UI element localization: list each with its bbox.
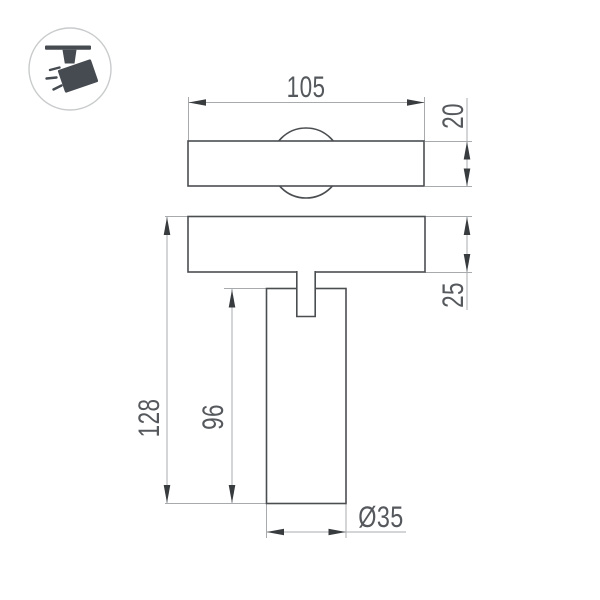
front-view-stem-fill (297, 271, 315, 317)
arrow-25-down (464, 254, 471, 272)
arrow-d35-right (329, 529, 347, 536)
arrow-25-up (464, 217, 471, 235)
dim-label-128: 128 (132, 399, 166, 438)
arrow-d35-left (267, 529, 285, 536)
drawing-sheet: 105 20 25 128 96 Ø35 (0, 0, 600, 600)
arrow-105-right (407, 99, 425, 106)
dim-label-20: 20 (436, 103, 470, 129)
track-spotlight-icon (29, 28, 111, 110)
technical-drawing: 105 20 25 128 96 Ø35 (0, 0, 600, 600)
dim-label-96: 96 (196, 404, 230, 430)
dim-label-d35: Ø35 (358, 500, 403, 533)
icon-ray-2 (47, 78, 57, 79)
top-view (188, 128, 424, 198)
dim-label-105: 105 (287, 70, 326, 104)
front-view-track-plate (188, 217, 425, 273)
top-view-track-plate (188, 141, 424, 186)
front-view-lamp-body (267, 289, 347, 504)
arrow-96-up (229, 290, 236, 308)
icon-track-bar (45, 46, 91, 50)
arrow-96-down (229, 485, 236, 503)
arrow-20-up (464, 142, 471, 160)
arrow-20-down (464, 169, 471, 187)
arrow-128-up (164, 217, 171, 235)
arrow-105-left (189, 99, 207, 106)
arrow-128-down (164, 485, 171, 503)
icon-stem (63, 50, 77, 64)
dim-label-25: 25 (436, 282, 470, 308)
front-view (188, 217, 425, 504)
